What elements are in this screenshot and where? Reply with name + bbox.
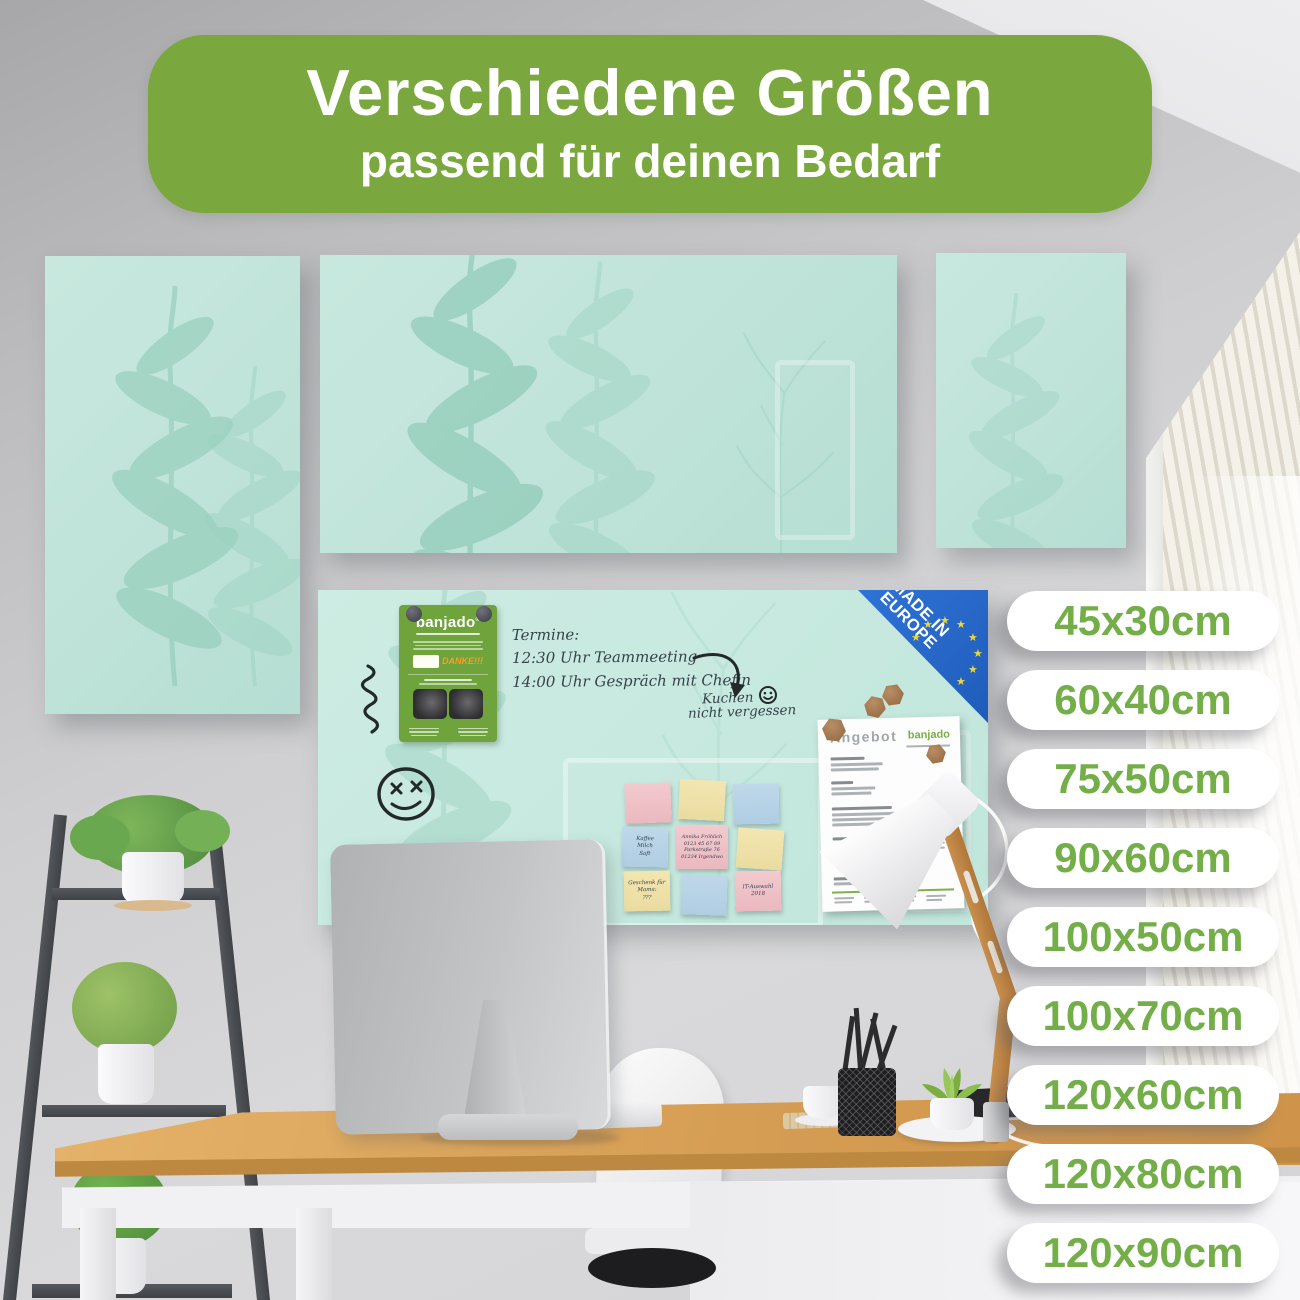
potted-plant	[72, 962, 177, 1054]
sticky-note-blank	[733, 784, 780, 825]
leaflet-heading-line	[424, 679, 472, 682]
eu-star-icon: ★	[968, 665, 978, 676]
sticky-note-auswahl: IT-Auswahl 2018	[735, 871, 782, 912]
sticky-note-gift: Geschenk für Mama: ???	[624, 871, 671, 912]
plant-pot	[98, 1044, 154, 1104]
leaflet-text-line	[415, 645, 481, 647]
sticky-note-contact: Annika Fröhlich 0123 45 67 89 Parkstraße…	[676, 825, 728, 869]
eu-star-icon: ★	[907, 649, 917, 660]
leaflet-thanks: DANKE!!!	[442, 656, 483, 666]
leaflet-dog-photos	[399, 687, 497, 724]
desk-leg	[80, 1208, 116, 1300]
plant-reflection-graphic	[936, 293, 1126, 548]
desk-leg	[296, 1208, 332, 1300]
smiley-doodle-icon	[376, 766, 436, 822]
document-brand-tagline	[906, 744, 950, 747]
size-pill-120x90: 120x90cm	[1007, 1223, 1279, 1283]
reminder-line2: nicht vergessen	[688, 702, 797, 722]
headline-banner: Verschiedene Größen passend für deinen B…	[148, 35, 1152, 213]
round-magnet	[476, 606, 492, 622]
size-pill-90x60: 90x60cm	[1007, 828, 1279, 888]
sticky-note-blank	[678, 779, 726, 821]
eu-star-icon: ★	[956, 677, 966, 688]
sticky-note-blank	[680, 874, 727, 916]
leaflet-text-line	[419, 683, 477, 685]
eu-star-icon: ★	[923, 620, 933, 631]
tree-reflection-graphic	[650, 315, 897, 553]
plant-pot	[122, 852, 184, 904]
size-pill-45x30: 45x30cm	[1007, 591, 1279, 651]
leaflet-text-line	[413, 648, 483, 650]
document-brand: banjado	[906, 724, 951, 747]
coffee-cup	[803, 1086, 843, 1118]
banjado-leaflet: banjado® DANKE!!!	[399, 605, 497, 742]
dog-photo	[413, 689, 447, 719]
chair-cushion	[588, 1248, 716, 1288]
imac-stand-base	[438, 1114, 578, 1140]
plant-reflection-graphic	[470, 255, 730, 553]
sticky-note-blank	[624, 782, 671, 824]
window	[1146, 232, 1300, 1102]
eu-star-icon: ★	[940, 682, 950, 693]
lamp-clamp	[983, 1102, 1009, 1142]
leaflet-tagline-line	[416, 633, 480, 635]
glass-board-portrait	[45, 256, 300, 714]
pencil	[842, 1016, 855, 1074]
plant-reflection-graphic	[45, 256, 300, 714]
picture-frame-reflection	[775, 360, 855, 540]
dog-photo	[449, 689, 483, 719]
size-pill-100x50: 100x50cm	[1007, 907, 1279, 967]
leaflet-text-line	[413, 641, 483, 643]
shelf-board	[42, 1105, 226, 1117]
sticky-note-blank	[736, 827, 785, 870]
hexagon-magnet	[881, 683, 906, 708]
appointments-heading: Termine:	[512, 622, 751, 647]
glass-board-small	[936, 253, 1126, 548]
eu-star-icon: ★	[923, 677, 933, 688]
size-pill-75x50: 75x50cm	[1007, 749, 1279, 809]
leaflet-divider	[408, 674, 488, 675]
size-pill-120x60: 120x60cm	[1007, 1065, 1279, 1125]
sticky-note-shopping: Kaffee Milch Saft	[622, 827, 669, 868]
plant-leaves	[70, 815, 130, 860]
plant-reflection-graphic	[320, 255, 640, 553]
eu-star-icon: ★	[968, 633, 978, 644]
marker-squiggle	[354, 664, 380, 734]
plant-reflection-graphic	[135, 316, 300, 714]
eu-star-icon: ★	[940, 616, 950, 627]
size-pill-100x70: 100x70cm	[1007, 986, 1279, 1046]
pot-saucer	[114, 900, 192, 911]
banner-title: Verschiedene Größen	[148, 55, 1152, 130]
eu-star-icon: ★	[911, 633, 921, 644]
eu-star-icon: ★	[973, 649, 983, 660]
eu-star-icon: ★	[956, 620, 966, 631]
round-magnet	[406, 606, 422, 622]
pen-cup	[838, 1068, 896, 1136]
eu-star-icon: ★	[911, 665, 921, 676]
leaflet-stamp-box	[413, 655, 439, 668]
product-scene: MADE INEUROPE ★ ★ ★ ★ ★ ★ ★ ★ ★ ★ ★ ★ ba…	[0, 0, 1300, 1300]
glass-board-landscape	[320, 255, 897, 553]
banner-subtitle: passend für deinen Bedarf	[148, 134, 1152, 188]
size-pill-120x80: 120x80cm	[1007, 1144, 1279, 1204]
plant-leaves	[175, 810, 230, 852]
size-pill-60x40: 60x40cm	[1007, 670, 1279, 730]
